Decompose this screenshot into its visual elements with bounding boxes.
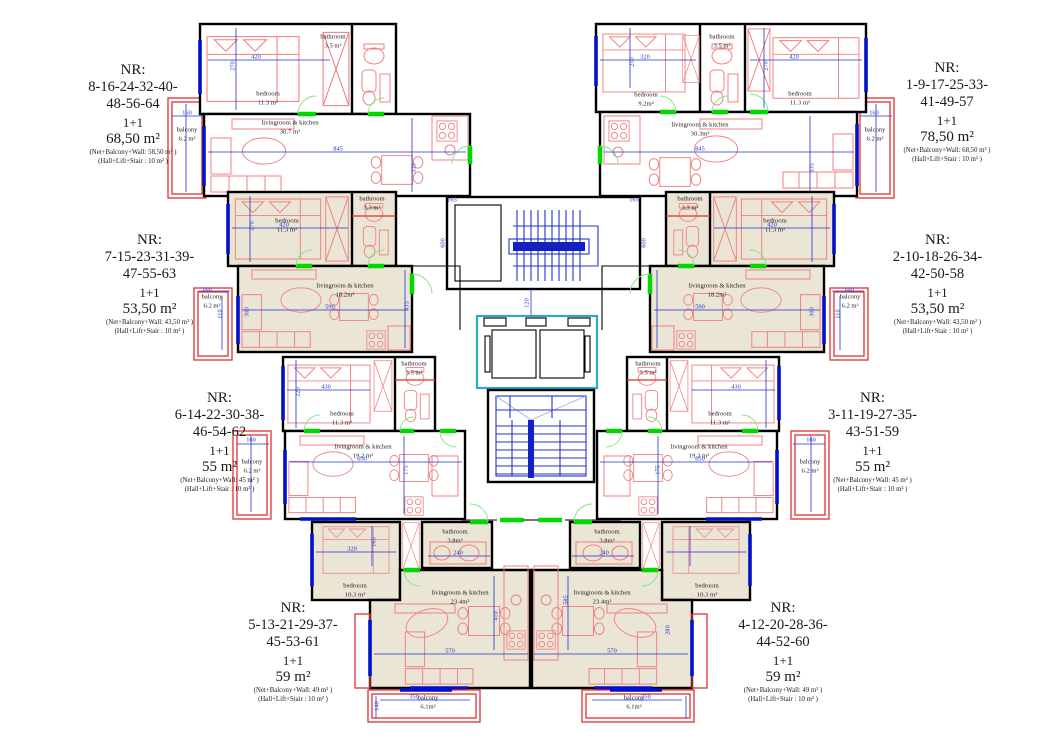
nr-title: NR: [198,600,388,617]
nr-numbers: 43-51-59 [775,424,970,441]
apartment-hall-note: (Hall+Lift+Stair : 10 m² ) [852,156,1042,164]
nr-title: NR: [122,390,317,407]
nr-numbers: 5-13-21-29-37- [198,617,388,634]
apartment-net-note: (Net+Balcony+Wall: 58,50 m² ) [38,149,228,157]
nr-title: NR: [775,390,970,407]
apartment-label-row3-left: NR: 6-14-22-30-38- 46-54-62 1+1 55 m² (N… [122,390,317,494]
nr-title: NR: [840,232,1035,249]
nr-title: NR: [52,232,247,249]
apartment-type: 1+1 [38,115,228,131]
apartment-type: 1+1 [775,443,970,459]
apartment-net-note: (Net+Balcony+Wall: 49 m² ) [688,687,878,695]
apartment-type: 1+1 [198,653,388,669]
apartment-label-top-right: NR: 1-9-17-25-33- 41-49-57 1+1 78,50 m² … [852,60,1042,164]
nr-numbers: 42-50-58 [840,266,1035,283]
nr-numbers: 41-49-57 [852,94,1042,111]
apartment-hall-note: (Hall+Lift+Stair : 10 m² ) [688,696,878,704]
nr-title: NR: [38,62,228,79]
apartment-net-note: (Net+Balcony+Wall: 49 m² ) [198,687,388,695]
apartment-label-bottom-left: NR: 5-13-21-29-37- 45-53-61 1+1 59 m² (N… [198,600,388,704]
apartment-type: 1+1 [840,285,1035,301]
apartment-net-note: (Net+Balcony+Wall: 43,50 m² ) [840,319,1035,327]
apartment-label-mid-left: NR: 7-15-23-31-39- 47-55-63 1+1 53,50 m²… [52,232,247,336]
apartment-type: 1+1 [688,653,878,669]
nr-numbers: 6-14-22-30-38- [122,407,317,424]
apartment-net-note: (Net+Balcony+Wall: 43,50 m² ) [52,319,247,327]
nr-numbers: 44-52-60 [688,634,878,651]
apartment-label-bottom-right: NR: 4-12-20-28-36- 44-52-60 1+1 59 m² (N… [688,600,878,704]
floor-plan: NR: 8-16-24-32-40- 48-56-64 1+1 68,50 m²… [0,0,1062,750]
apartment-area: 53,50 m² [52,301,247,318]
nr-numbers: 3-11-19-27-35- [775,407,970,424]
apartment-net-note: (Net+Balcony+Wall: 45 m² ) [122,477,317,485]
apartment-label-top-left: NR: 8-16-24-32-40- 48-56-64 1+1 68,50 m²… [38,62,228,166]
apartment-area: 68,50 m² [38,131,228,148]
nr-numbers: 46-54-62 [122,424,317,441]
apartment-type: 1+1 [852,113,1042,129]
nr-numbers: 7-15-23-31-39- [52,249,247,266]
apartment-net-note: (Net+Balcony+Wall: 45 m² ) [775,477,970,485]
apartment-hall-note: (Hall+Lift+Stair : 10 m² ) [840,328,1035,336]
apartment-area: 59 m² [688,669,878,686]
apartment-type: 1+1 [122,443,317,459]
apartment-type: 1+1 [52,285,247,301]
nr-numbers: 8-16-24-32-40- [38,79,228,96]
nr-numbers: 48-56-64 [38,96,228,113]
apartment-area: 55 m² [122,459,317,476]
nr-title: NR: [852,60,1042,77]
apartment-area: 55 m² [775,459,970,476]
apartment-area: 53,50 m² [840,301,1035,318]
nr-numbers: 1-9-17-25-33- [852,77,1042,94]
nr-numbers: 45-53-61 [198,634,388,651]
nr-numbers: 2-10-18-26-34- [840,249,1035,266]
apartment-area: 78,50 m² [852,129,1042,146]
apartment-net-note: (Net+Balcony+Wall: 68,50 m² ) [852,147,1042,155]
apartment-hall-note: (Hall+Lift+Stair : 10 m² ) [38,158,228,166]
apartment-area: 59 m² [198,669,388,686]
apartment-hall-note: (Hall+Lift+Stair : 10 m² ) [122,486,317,494]
nr-numbers: 47-55-63 [52,266,247,283]
apartment-hall-note: (Hall+Lift+Stair : 10 m² ) [198,696,388,704]
apartment-hall-note: (Hall+Lift+Stair : 10 m² ) [775,486,970,494]
nr-title: NR: [688,600,878,617]
apartment-label-mid-right: NR: 2-10-18-26-34- 42-50-58 1+1 53,50 m²… [840,232,1035,336]
apartment-label-row3-right: NR: 3-11-19-27-35- 43-51-59 1+1 55 m² (N… [775,390,970,494]
nr-numbers: 4-12-20-28-36- [688,617,878,634]
apartment-hall-note: (Hall+Lift+Stair : 10 m² ) [52,328,247,336]
